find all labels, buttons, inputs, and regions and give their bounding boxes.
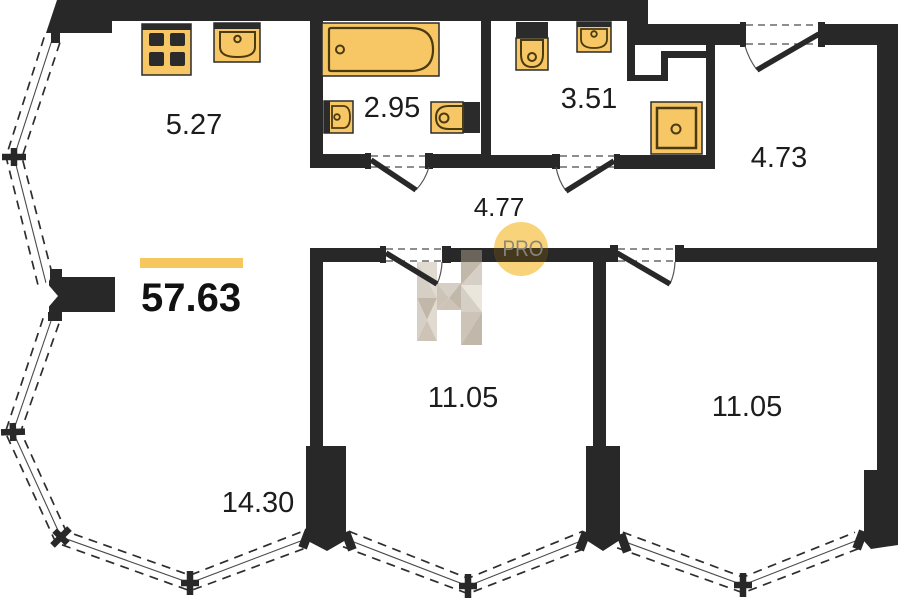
svg-text:14.30: 14.30 [222, 487, 295, 519]
svg-text:4.73: 4.73 [751, 142, 807, 174]
svg-text:11.05: 11.05 [428, 382, 498, 414]
svg-text:4.77: 4.77 [474, 192, 525, 222]
svg-text:2.95: 2.95 [364, 92, 420, 124]
svg-text:57.63: 57.63 [141, 276, 241, 320]
svg-text:PRO: PRO [503, 236, 544, 261]
svg-text:5.27: 5.27 [166, 109, 222, 141]
svg-text:11.05: 11.05 [712, 391, 782, 423]
svg-text:3.51: 3.51 [561, 83, 617, 115]
